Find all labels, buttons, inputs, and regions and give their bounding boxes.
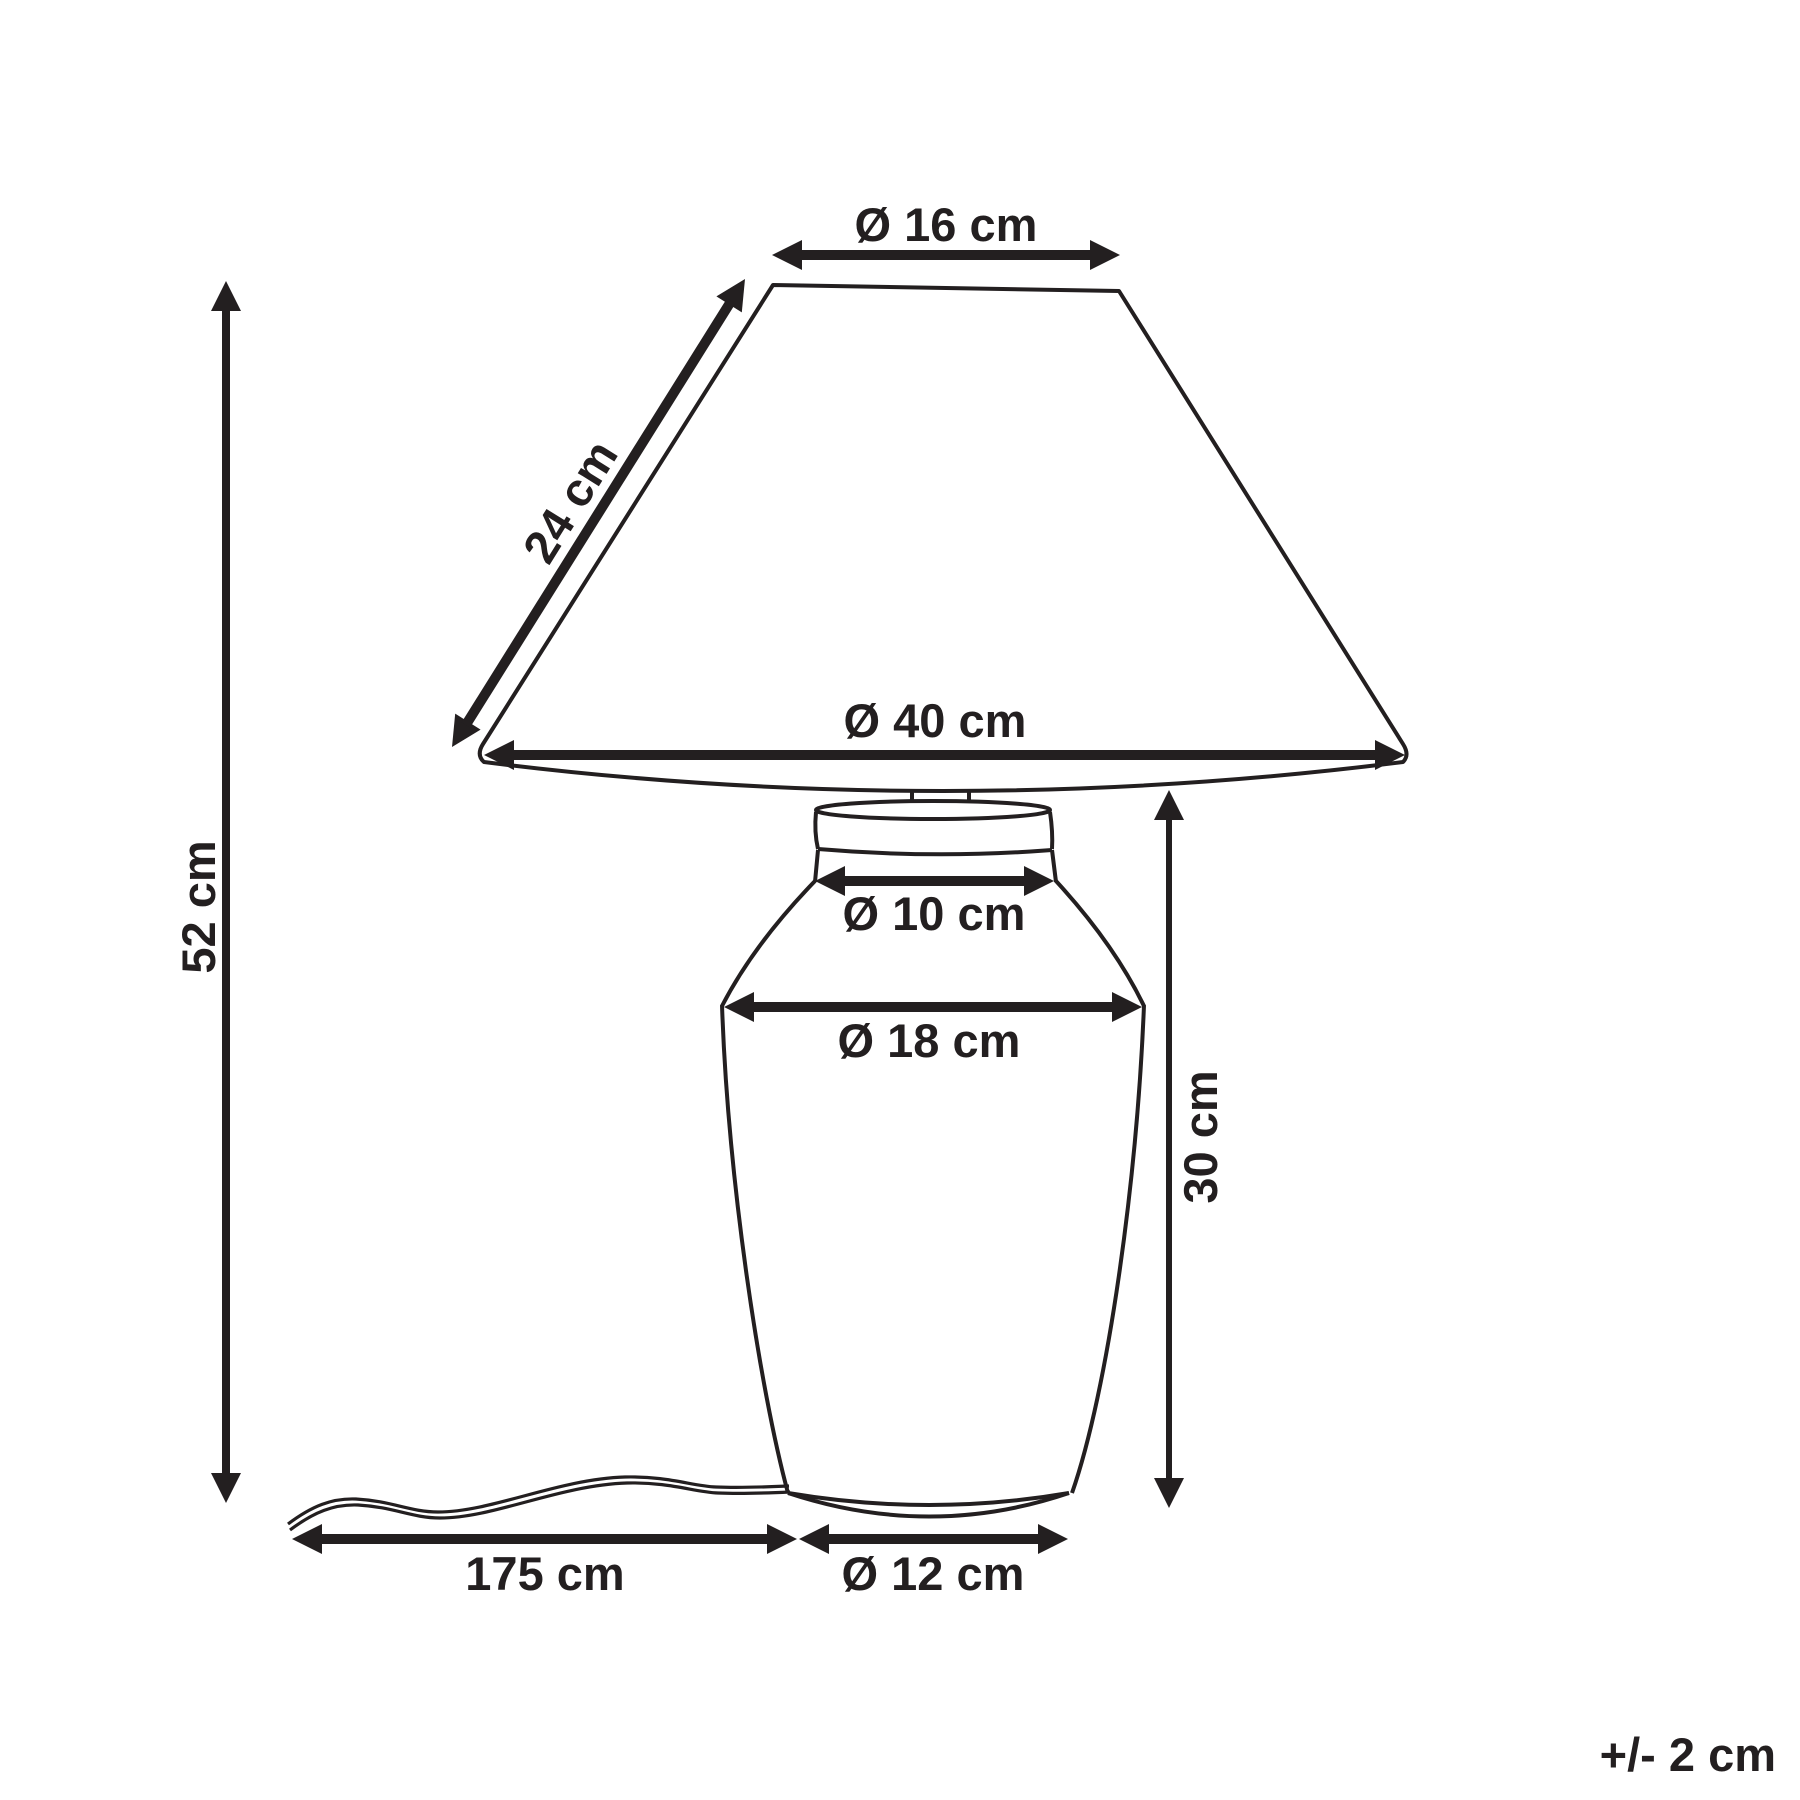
svg-text:Ø 16 cm: Ø 16 cm [855, 198, 1038, 251]
svg-text:Ø 40 cm: Ø 40 cm [844, 694, 1027, 747]
svg-text:52 cm: 52 cm [172, 840, 225, 973]
svg-text:Ø 18 cm: Ø 18 cm [838, 1014, 1021, 1067]
svg-text:Ø 10 cm: Ø 10 cm [843, 887, 1026, 940]
svg-text:Ø 12 cm: Ø 12 cm [842, 1547, 1025, 1600]
svg-text:175 cm: 175 cm [465, 1547, 624, 1600]
svg-text:+/- 2 cm: +/- 2 cm [1600, 1728, 1776, 1781]
svg-text:30 cm: 30 cm [1174, 1070, 1227, 1203]
